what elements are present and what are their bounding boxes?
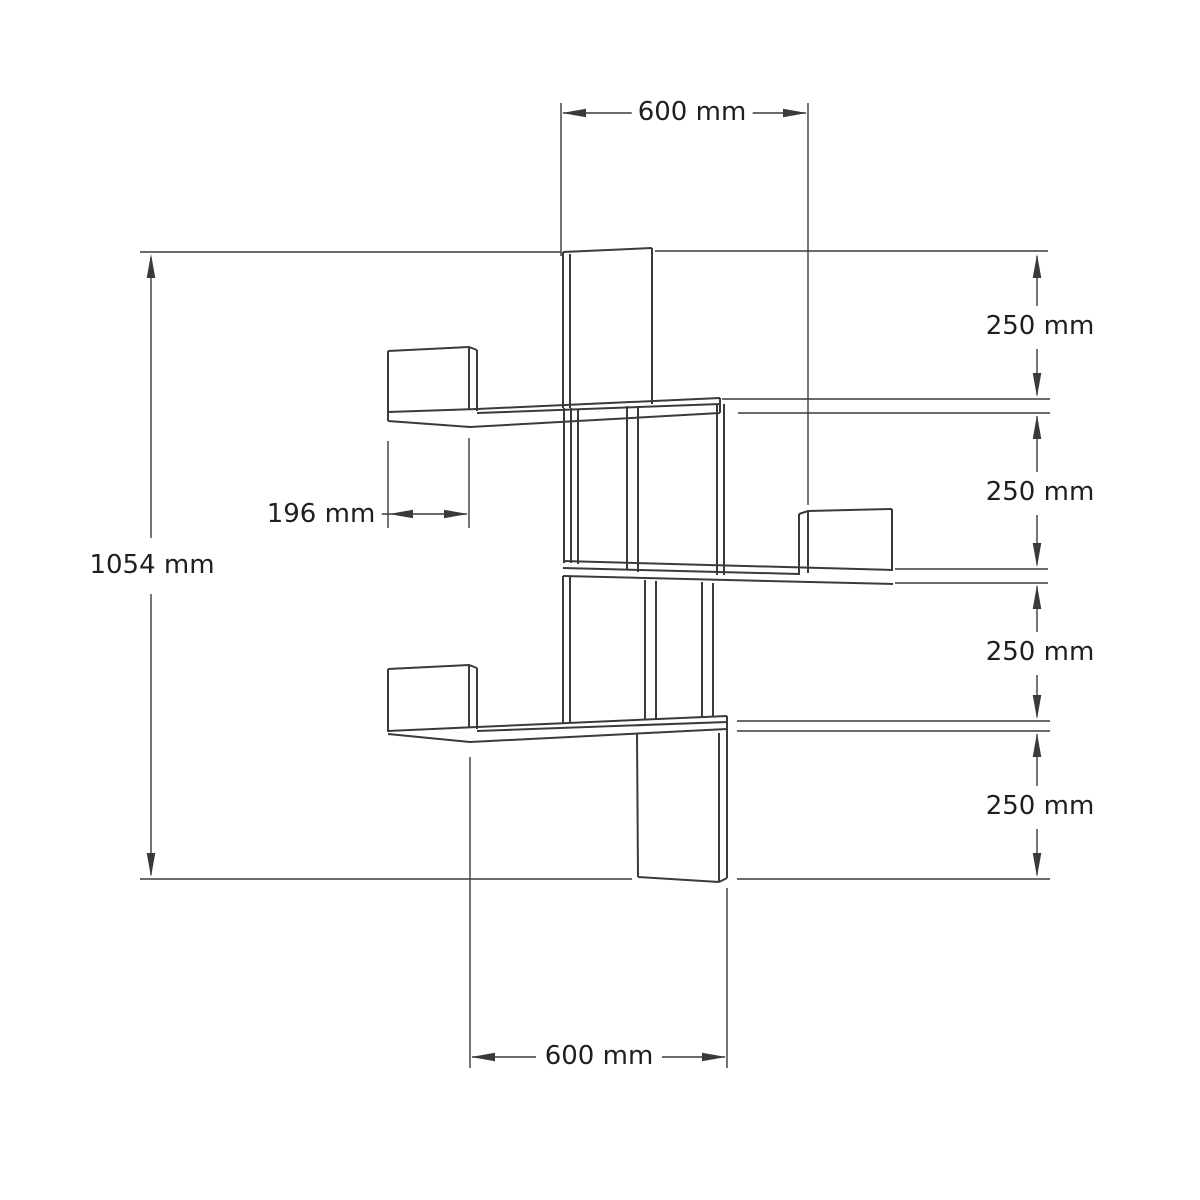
dividers-bay-1 (564, 404, 724, 575)
hanging-panel (637, 729, 727, 882)
spacing-label-1: 250 mm (980, 312, 1101, 342)
shelf-board-2 (563, 561, 893, 584)
shelf-structure (388, 248, 893, 882)
end-panel-shelf-2 (799, 509, 892, 575)
technical-drawing-svg (0, 0, 1200, 1200)
spacing-label-3: 250 mm (980, 638, 1101, 668)
top-back-panel (563, 248, 652, 408)
shelf-depth-label: 196 mm (261, 500, 382, 530)
top-width-label: 600 mm (632, 98, 753, 128)
spacing-label-4: 250 mm (980, 792, 1101, 822)
drawing-canvas: 600 mm 250 mm 250 mm 250 mm 250 mm 1054 … (0, 0, 1200, 1200)
bottom-width-label: 600 mm (539, 1042, 660, 1072)
total-height-label: 1054 mm (83, 551, 220, 581)
dividers-bay-2 (563, 576, 713, 723)
dimension-bottom-width (470, 757, 727, 1068)
shelf-board-1 (388, 398, 720, 427)
spacing-label-2: 250 mm (980, 478, 1101, 508)
end-panel-shelf-1 (388, 347, 477, 414)
end-panel-shelf-3 (388, 665, 477, 732)
dimension-shelf-depth (371, 438, 469, 528)
shelf-board-3 (388, 716, 727, 742)
dimension-top-width (561, 103, 808, 505)
